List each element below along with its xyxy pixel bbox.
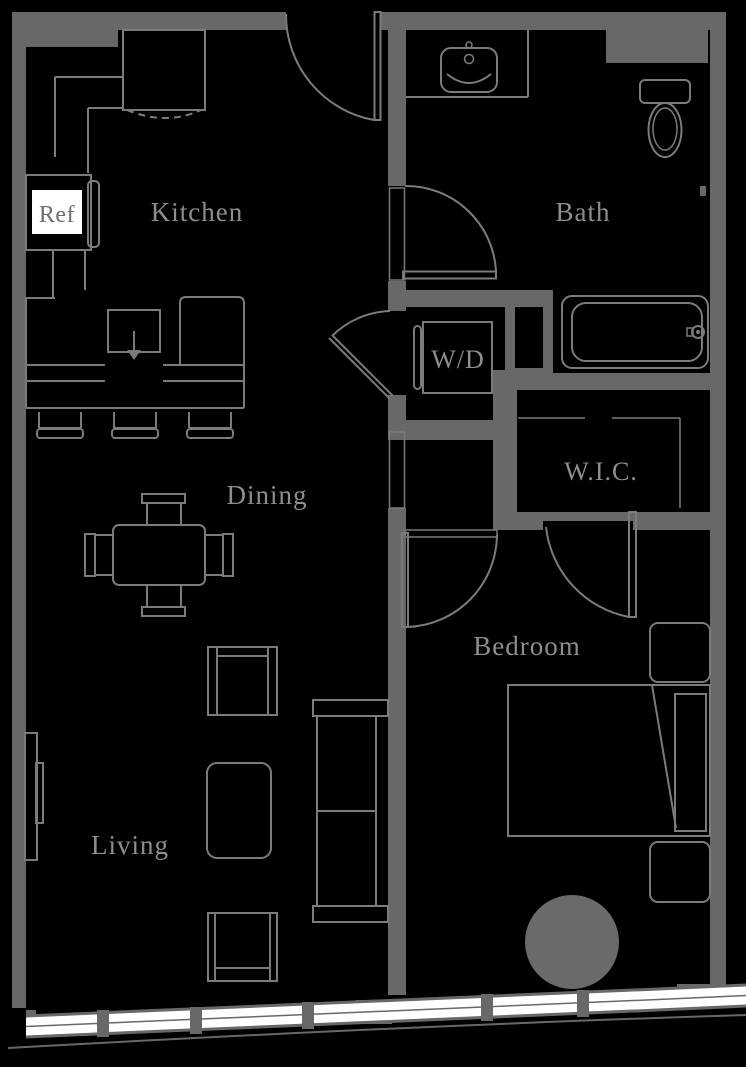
- bath-faucet-dot: [465, 55, 474, 64]
- room-label-kitchen: Kitchen: [151, 197, 243, 227]
- floor-plan-canvas: Ref: [0, 0, 746, 1067]
- bath-door-swing-arc: [405, 186, 496, 271]
- window-wall: [8, 985, 746, 1048]
- wall-bedroom-north-3: [633, 512, 726, 530]
- room-labels: Kitchen Bath W/D W.I.C. Dining Bedroom L…: [91, 197, 638, 860]
- dining-table: [113, 525, 205, 585]
- tub-faucet-center: [696, 330, 700, 334]
- room-label-bedroom: Bedroom: [473, 631, 581, 661]
- window-mullion: [481, 994, 493, 1021]
- kitchen-faucet-head: [127, 350, 141, 360]
- bedroom-furniture: [508, 623, 710, 989]
- room-label-living: Living: [91, 830, 169, 860]
- accent-chair: [208, 913, 277, 981]
- window-mullion: [577, 990, 589, 1017]
- laundry-door-leaf: [329, 335, 393, 399]
- bed-bolster: [675, 694, 706, 831]
- wic-door: [546, 512, 636, 617]
- breakfast-bar-edges: [26, 365, 244, 381]
- washer-dryer-door: [414, 326, 421, 389]
- kitchen-fixtures: Ref: [26, 30, 244, 438]
- bar-stool: [112, 412, 158, 438]
- wall-wic-west: [493, 370, 517, 530]
- sofa-cushion-lines: [317, 716, 376, 906]
- bath-door: [403, 186, 496, 279]
- tv-console: [25, 733, 43, 860]
- bed: [508, 685, 710, 836]
- doors: [286, 12, 636, 627]
- kitchen-island: [26, 297, 244, 408]
- opening-hall-passage: [390, 432, 405, 508]
- entry-door: [286, 12, 381, 120]
- dining-chair: [205, 534, 233, 576]
- living-furniture: [25, 647, 388, 981]
- wall-right: [710, 12, 726, 985]
- dining-furniture: [85, 494, 233, 616]
- entry-door-leaf: [375, 12, 381, 120]
- bath-shelf-block: [606, 30, 708, 63]
- opening-bedroom-header: [405, 530, 497, 537]
- wall-bedroom-north-2: [497, 512, 543, 530]
- bar-stools: [37, 412, 233, 438]
- armchair: [208, 647, 277, 715]
- wall-central-5: [388, 530, 406, 995]
- bar-stool: [37, 412, 83, 438]
- wall-wic-door-header: [543, 512, 633, 521]
- wall-central-1: [388, 12, 406, 186]
- room-label-laundry: W/D: [431, 345, 485, 374]
- bath-sink-curve: [447, 74, 491, 83]
- toilet-seat: [653, 108, 677, 150]
- room-label-bath: Bath: [556, 197, 611, 227]
- entry-door-swing-arc: [286, 14, 374, 120]
- window-mullion: [190, 1007, 202, 1034]
- window-mullion: [97, 1010, 109, 1037]
- refrigerator-door: [88, 181, 99, 247]
- nightstand: [650, 842, 710, 902]
- refrigerator-label: Ref: [39, 202, 75, 228]
- island-end-cap: [180, 297, 244, 365]
- bathtub-basin: [572, 303, 702, 361]
- sofa-armrest: [313, 700, 388, 716]
- bath-sink: [441, 42, 497, 92]
- room-label-dining: Dining: [226, 480, 307, 510]
- bedroom-door-swing-arc: [408, 535, 497, 627]
- bathtub-outline: [562, 296, 708, 368]
- window-mullion: [302, 1002, 314, 1029]
- laundry-door: [329, 311, 393, 399]
- dining-chair: [142, 494, 185, 525]
- bar-stool: [187, 412, 233, 438]
- range-hood-arc: [127, 110, 201, 118]
- toilet: [640, 80, 690, 157]
- wall-tub-south: [545, 373, 710, 390]
- dining-chair: [85, 534, 113, 576]
- door-stop: [700, 186, 706, 196]
- wall-top-right: [381, 12, 726, 30]
- wall-laundry-south: [388, 420, 517, 440]
- floor-plan: Ref: [0, 0, 746, 1067]
- range-cabinet: [123, 30, 205, 110]
- bedroom-door: [402, 533, 497, 627]
- toilet-tank: [640, 80, 690, 103]
- sofa-armrest: [313, 906, 388, 922]
- refrigerator: Ref: [26, 175, 99, 250]
- sofa: [313, 700, 388, 922]
- laundry-door-swing-arc: [332, 311, 390, 336]
- wall-left: [12, 12, 26, 1008]
- dining-chair: [142, 585, 185, 616]
- bath-door-leaf: [403, 272, 496, 279]
- coffee-table: [207, 763, 271, 858]
- wall-top-left-deep: [12, 12, 118, 47]
- bed-blanket-fold: [652, 685, 676, 828]
- room-label-wic: W.I.C.: [564, 457, 638, 486]
- nightstand: [650, 623, 710, 682]
- round-rug: [525, 895, 619, 989]
- wic-door-swing-arc: [546, 527, 629, 617]
- kitchen-cabinet-lines: [53, 250, 85, 297]
- niche-opening: [515, 307, 543, 368]
- opening-bath-passage: [390, 188, 405, 280]
- wall-bedroom-north-1: [388, 512, 405, 530]
- kitchen-counter-upper: [55, 77, 124, 173]
- bathtub: [562, 296, 708, 368]
